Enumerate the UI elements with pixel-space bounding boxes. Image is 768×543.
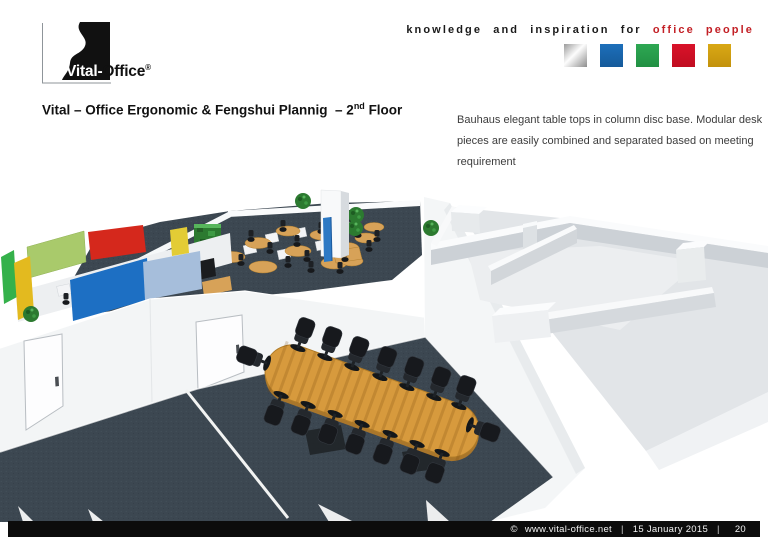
logo-text-white: Vital- (66, 63, 102, 80)
footer-separator: | (621, 524, 624, 535)
column (321, 190, 349, 262)
footer-url: www.vital-office.net (525, 524, 612, 535)
logo-wordmark: Vital-Office® (66, 63, 151, 81)
swatch-gold (708, 44, 731, 67)
swatch-green (636, 44, 659, 67)
plant-at-rooms (423, 220, 439, 236)
logo-text-black: Office (102, 63, 145, 80)
swatch-silver (564, 44, 587, 67)
slide-page: Vital-Office® knowledge and inspiration … (0, 0, 768, 543)
swatch-red (672, 44, 695, 67)
slogan: knowledge and inspiration for office peo… (406, 24, 754, 36)
footer-date: 15 January 2015 (633, 524, 708, 535)
description-text: Bauhaus elegant table tops in column dis… (457, 110, 768, 173)
floorplan-rendering (0, 182, 768, 523)
slogan-red: office people (653, 24, 754, 36)
page-title: Vital – Office Ergonomic & Fengshui Plan… (42, 101, 402, 118)
footer-page-number: 20 (735, 524, 746, 535)
swatch-blue (600, 44, 623, 67)
slogan-black: knowledge and inspiration for (406, 24, 641, 36)
copyright-symbol: © (511, 524, 518, 535)
footer-bar: © www.vital-office.net | 15 January 2015… (8, 521, 760, 537)
footer-separator: | (717, 524, 720, 535)
registered-mark: ® (145, 63, 151, 72)
vital-office-logo: Vital-Office® (42, 22, 162, 84)
plant-ball (23, 306, 39, 322)
